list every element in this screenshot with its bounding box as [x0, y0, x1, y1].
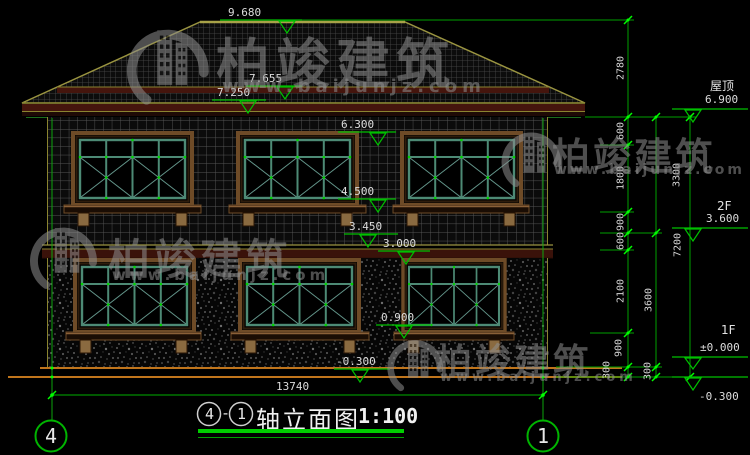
- elevation-roof-right: 6.900: [705, 93, 738, 106]
- watermark-url-left: www.baijunjz.com: [112, 266, 329, 284]
- elevation-floor1-right: ±0.000: [700, 341, 740, 354]
- dim-300b: 300: [643, 362, 654, 380]
- elevation-belt-top: 3.450: [349, 220, 382, 233]
- window-2f-left: [73, 133, 192, 205]
- watermark-url-right: www.baijunjz.com: [554, 162, 745, 178]
- floor2-label: 2F: [717, 199, 732, 213]
- window-2f-middle: [238, 133, 357, 205]
- title-underline-thin: [198, 437, 404, 438]
- axis-bubble-1: 1: [527, 420, 559, 452]
- roof-label: 屋顶: [710, 77, 734, 94]
- elevation-win1-sill: 0.900: [381, 311, 414, 324]
- dim-7200: 7200: [673, 233, 684, 257]
- elevation-floor2: 3.000: [383, 237, 416, 250]
- dim-total-width: 13740: [276, 380, 309, 393]
- elevation-win2-sill: 4.500: [341, 185, 374, 198]
- dim-900a: 900: [616, 213, 627, 231]
- dim-3600: 3600: [644, 288, 655, 312]
- cad-elevation-drawing: 9.680 7.655 7.250 6.300 4.500 3.450 3.00…: [0, 0, 750, 455]
- eave-cornice: [22, 103, 585, 118]
- watermark-url-top: www.baijunjz.com: [222, 76, 486, 97]
- axis-bubble-4: 4: [35, 420, 67, 452]
- dim-2100: 2100: [616, 279, 627, 303]
- elevation-floor2-right: 3.600: [706, 212, 739, 225]
- floor1-label: 1F: [721, 323, 736, 337]
- title-axis-right: 1: [230, 403, 253, 426]
- elevation-win2-head: 6.300: [341, 118, 374, 131]
- elevation-grade-right: -0.300: [699, 390, 739, 403]
- elevation-ridge: 9.680: [228, 6, 261, 19]
- dim-600b: 600: [616, 232, 627, 250]
- elevation-grade-center: -0.300: [336, 355, 376, 368]
- title-underline-thick: [198, 429, 404, 433]
- watermark-logo-top: [122, 18, 210, 106]
- watermark-logo-left: [26, 218, 98, 290]
- watermark-url-bottom: www.baijunjz.com: [440, 370, 637, 385]
- watermark-logo-bottom: [384, 332, 444, 392]
- window-1f-right: [403, 260, 505, 332]
- drawing-scale: 1:100: [358, 404, 418, 428]
- dim-2780: 2780: [616, 56, 627, 80]
- dim-900b: 900: [614, 339, 625, 357]
